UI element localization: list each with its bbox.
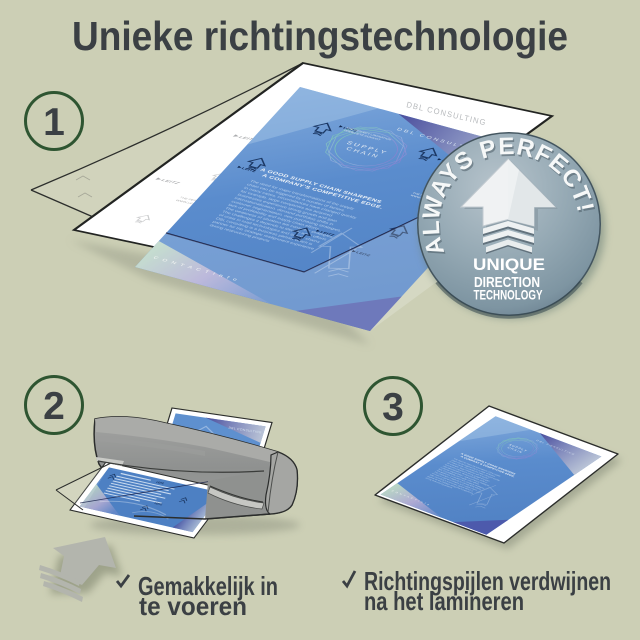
- svg-text:1: 1: [43, 101, 65, 144]
- svg-text:UNIQUE: UNIQUE: [473, 255, 545, 274]
- svg-text:na het lamineren: na het lamineren: [364, 586, 524, 616]
- svg-text:te voeren: te voeren: [139, 591, 247, 621]
- svg-text:2: 2: [43, 385, 65, 428]
- svg-text:TECHNOLOGY: TECHNOLOGY: [474, 288, 543, 303]
- svg-text:3: 3: [382, 386, 404, 429]
- svg-text:Unieke richtingstechnologie: Unieke richtingstechnologie: [72, 13, 568, 59]
